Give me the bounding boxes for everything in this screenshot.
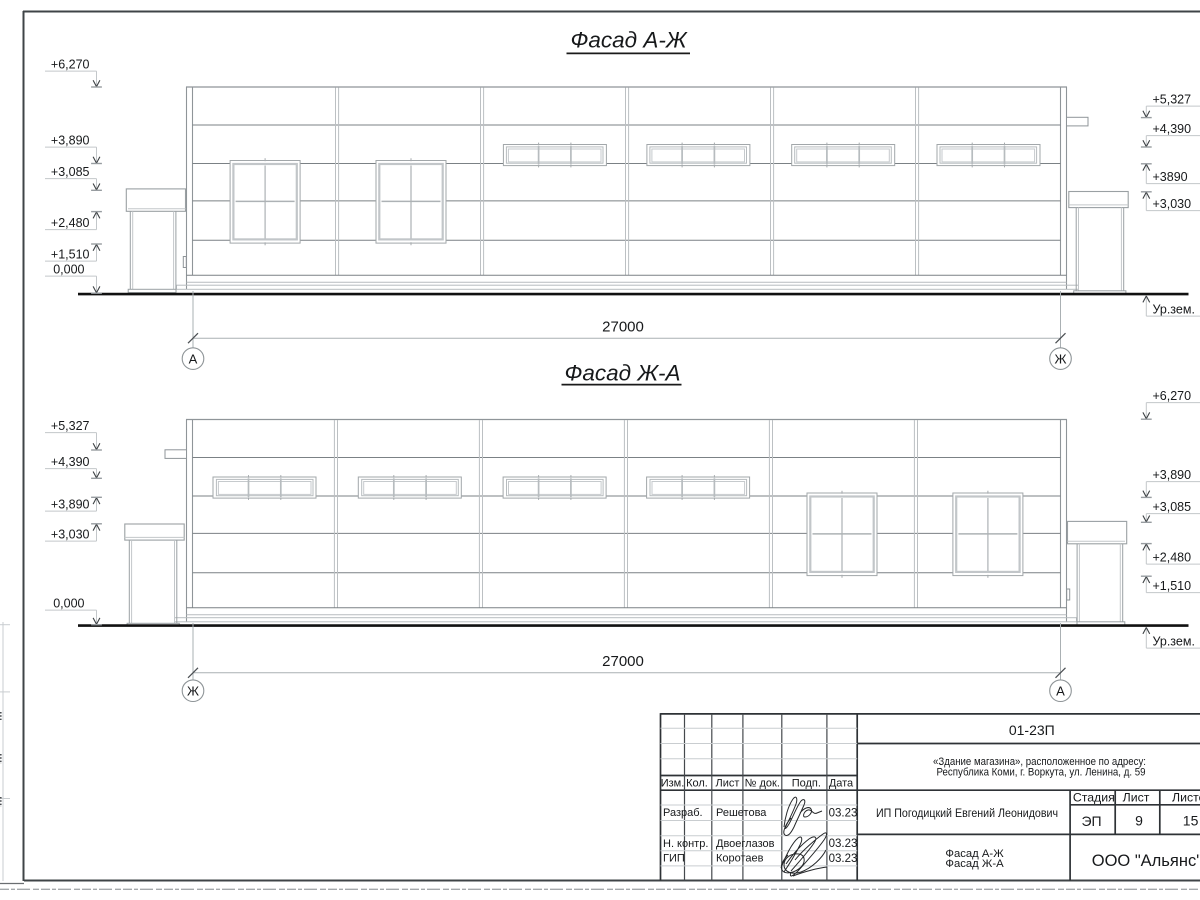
- svg-text:03.23: 03.23: [829, 853, 858, 865]
- svg-text:+6,270: +6,270: [51, 58, 90, 72]
- svg-text:Разраб.: Разраб.: [663, 807, 703, 819]
- svg-text:№ док.: № док.: [745, 777, 780, 789]
- svg-text:ГИП: ГИП: [663, 853, 685, 865]
- svg-text:Изм.: Изм.: [661, 777, 685, 789]
- svg-text:+2,480: +2,480: [51, 216, 90, 230]
- svg-text:+5,327: +5,327: [1153, 93, 1192, 107]
- svg-text:Ж: Ж: [1054, 351, 1066, 366]
- svg-text:01-23П: 01-23П: [1009, 722, 1055, 738]
- svg-text:+3,085: +3,085: [1153, 500, 1192, 514]
- svg-text:Подп.: Подп.: [792, 777, 821, 789]
- svg-text:27000: 27000: [602, 319, 644, 336]
- svg-text:27000: 27000: [602, 653, 644, 670]
- svg-text:Стадия: Стадия: [1073, 791, 1115, 805]
- svg-text:Республика Коми, г. Воркута, у: Республика Коми, г. Воркута, ул. Ленина,…: [937, 767, 1146, 779]
- svg-text:+3,890: +3,890: [51, 498, 90, 512]
- svg-text:+5,327: +5,327: [51, 419, 90, 433]
- svg-text:Фасад Ж-А: Фасад Ж-А: [945, 858, 1004, 870]
- svg-text:Ур.зем.: Ур.зем.: [1153, 303, 1195, 317]
- svg-text:Кол.: Кол.: [686, 777, 708, 789]
- svg-text:Ур.зем.: Ур.зем.: [1153, 635, 1195, 649]
- svg-text:0,000: 0,000: [53, 597, 84, 611]
- svg-text:Фасад Ж-А: Фасад Ж-А: [565, 361, 681, 386]
- svg-text:+3,030: +3,030: [1153, 197, 1192, 211]
- svg-text:+3,085: +3,085: [51, 165, 90, 179]
- svg-text:Листов: Листов: [1172, 791, 1200, 805]
- svg-text:ИП Погодицкий Евгений Леонидов: ИП Погодицкий Евгений Леонидович: [876, 808, 1058, 820]
- svg-text:ЭП: ЭП: [1081, 813, 1101, 829]
- svg-text:+3890: +3890: [1153, 170, 1188, 184]
- svg-text:А: А: [189, 351, 198, 366]
- svg-text:Н. контр.: Н. контр.: [663, 838, 708, 850]
- svg-text:Фасад А-Ж: Фасад А-Ж: [571, 28, 688, 53]
- svg-text:+3,890: +3,890: [51, 134, 90, 148]
- svg-text:+3,890: +3,890: [1153, 468, 1192, 482]
- svg-text:ООО "Альянс": ООО "Альянс": [1092, 852, 1200, 870]
- svg-text:03.23: 03.23: [829, 838, 858, 850]
- svg-text:03.23: 03.23: [829, 807, 858, 819]
- svg-text:Лист: Лист: [1123, 791, 1150, 805]
- svg-text:Ж: Ж: [187, 683, 199, 698]
- svg-text:+2,480: +2,480: [1153, 551, 1192, 565]
- svg-text:+1,510: +1,510: [1153, 579, 1192, 593]
- svg-text:15: 15: [1183, 813, 1199, 829]
- svg-text:9: 9: [1135, 813, 1143, 829]
- svg-text:Двоеглазов: Двоеглазов: [716, 838, 775, 850]
- svg-text:Лист: Лист: [716, 777, 740, 789]
- svg-text:+4,390: +4,390: [51, 455, 90, 469]
- svg-text:+3,030: +3,030: [51, 528, 90, 542]
- svg-text:0,000: 0,000: [53, 263, 84, 277]
- svg-text:Коротаев: Коротаев: [716, 853, 764, 865]
- svg-text:+4,390: +4,390: [1153, 122, 1192, 136]
- svg-text:+6,270: +6,270: [1153, 389, 1192, 403]
- svg-text:А: А: [1056, 683, 1065, 698]
- svg-text:Решетова: Решетова: [716, 807, 767, 819]
- svg-text:+1,510: +1,510: [51, 248, 90, 262]
- svg-text:Дата: Дата: [829, 777, 854, 789]
